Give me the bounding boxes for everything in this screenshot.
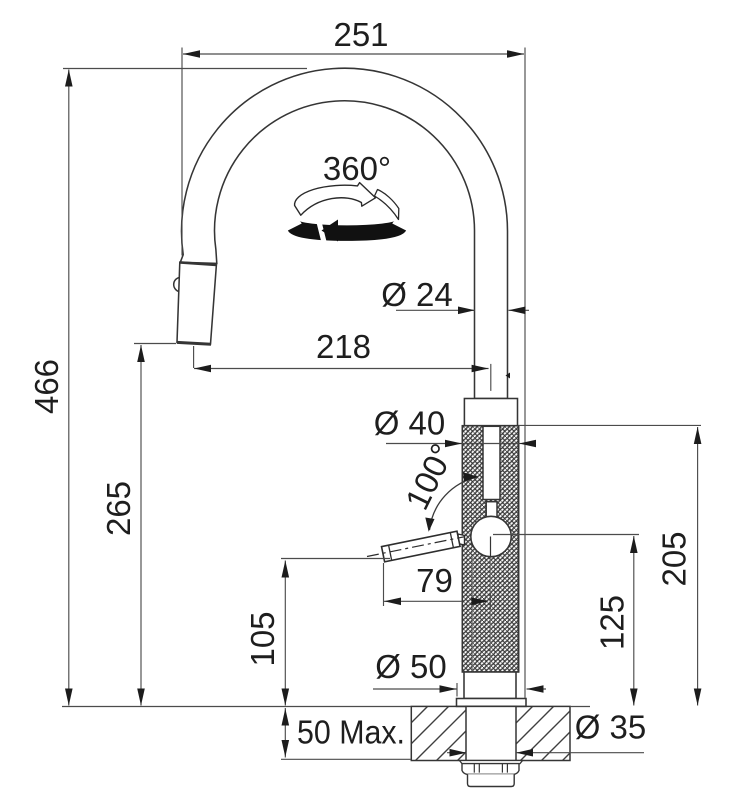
svg-text:125: 125 [594,595,631,650]
svg-text:Ø 35: Ø 35 [575,709,647,746]
svg-text:466: 466 [28,359,65,414]
svg-text:265: 265 [100,481,137,536]
svg-text:105: 105 [244,611,281,666]
svg-text:205: 205 [656,531,693,586]
svg-text:251: 251 [333,16,388,53]
svg-text:79: 79 [416,562,453,599]
svg-text:218: 218 [316,328,371,365]
svg-text:100°: 100° [398,438,461,516]
svg-text:Ø 40: Ø 40 [374,405,446,442]
svg-text:360°: 360° [323,150,391,187]
svg-text:50 Max.: 50 Max. [297,714,405,751]
svg-text:Ø 50: Ø 50 [375,648,447,685]
svg-text:Ø 24: Ø 24 [381,276,453,313]
